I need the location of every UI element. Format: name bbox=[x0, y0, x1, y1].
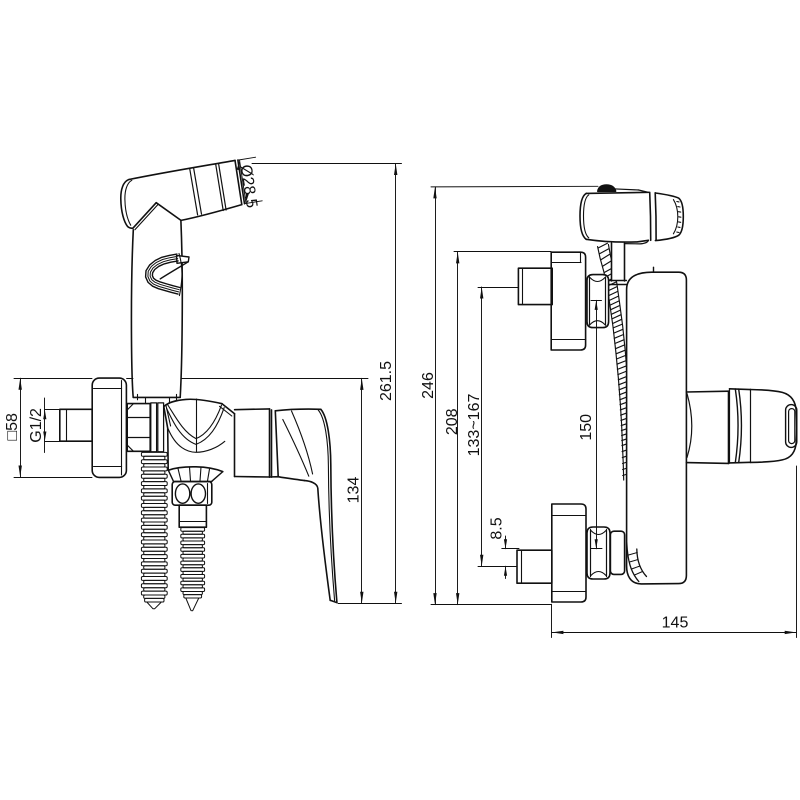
svg-text:133~167: 133~167 bbox=[466, 394, 483, 457]
svg-text:208: 208 bbox=[444, 408, 461, 435]
svg-text:246: 246 bbox=[420, 372, 437, 399]
svg-text:134: 134 bbox=[346, 477, 363, 504]
svg-text:150: 150 bbox=[578, 414, 595, 441]
svg-text:□58: □58 bbox=[4, 413, 21, 441]
svg-text:145: 145 bbox=[662, 615, 689, 632]
svg-text:8.5: 8.5 bbox=[489, 517, 506, 539]
svg-text:261.5: 261.5 bbox=[378, 361, 395, 401]
svg-text:G1/2: G1/2 bbox=[28, 408, 45, 443]
